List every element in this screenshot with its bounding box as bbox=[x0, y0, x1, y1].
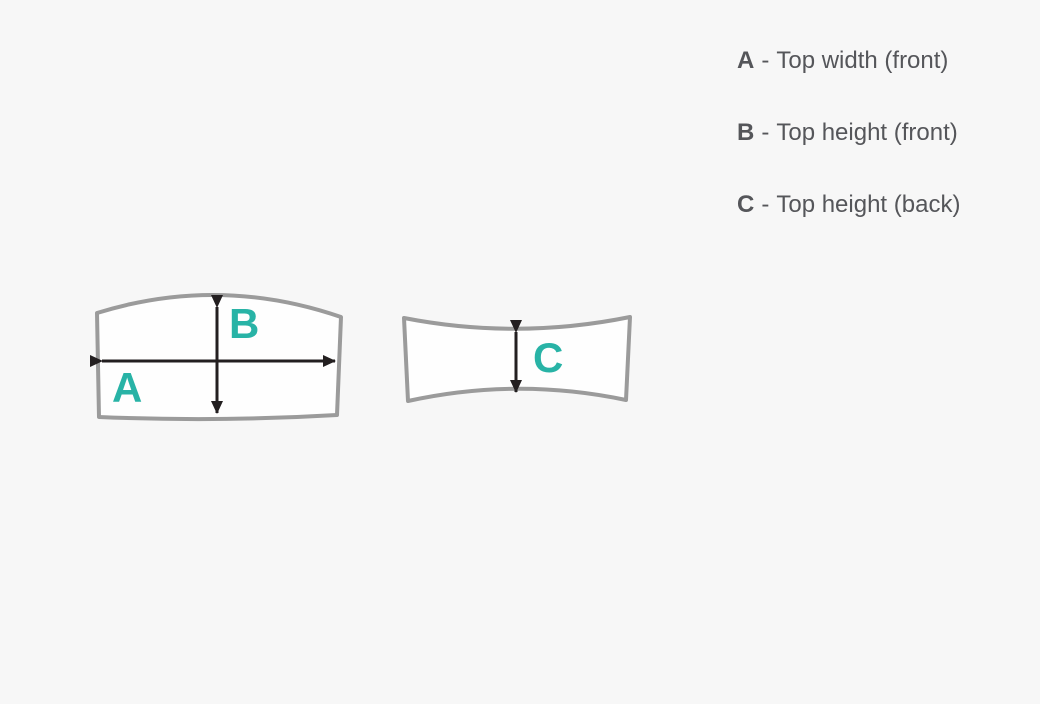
legend-key-b: B bbox=[737, 119, 754, 146]
legend-description-b: Top height (front) bbox=[776, 119, 957, 146]
label-a: A bbox=[112, 364, 142, 411]
legend-item-a: A-Top width (front) bbox=[737, 47, 960, 75]
legend-description-a: Top width (front) bbox=[776, 47, 948, 74]
legend-key-a: A bbox=[737, 47, 754, 74]
size-guide-page: A B C A-Top width (front) B-Top height (… bbox=[0, 0, 1040, 704]
legend-item-c: C-Top height (back) bbox=[737, 191, 960, 219]
measurement-legend: A-Top width (front) B-Top height (front)… bbox=[737, 47, 960, 263]
legend-separator: - bbox=[761, 119, 769, 146]
legend-key-c: C bbox=[737, 191, 754, 218]
legend-item-b: B-Top height (front) bbox=[737, 119, 960, 147]
label-b: B bbox=[229, 300, 259, 347]
legend-description-c: Top height (back) bbox=[776, 191, 960, 218]
legend-separator: - bbox=[761, 191, 769, 218]
legend-separator: - bbox=[761, 47, 769, 74]
label-c: C bbox=[533, 334, 563, 381]
